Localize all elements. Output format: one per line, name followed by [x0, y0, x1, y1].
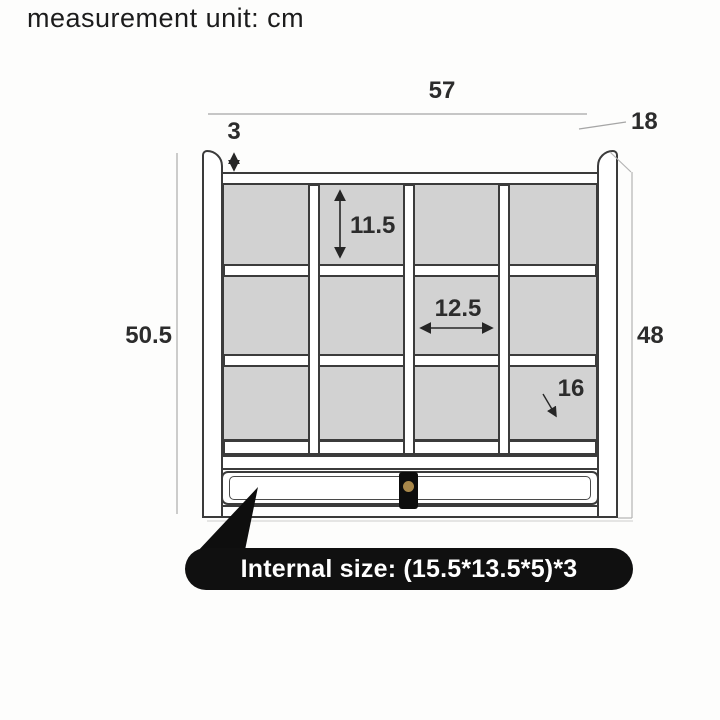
dim-top-rail-label: 3 [219, 120, 249, 144]
right-post [597, 150, 618, 518]
vertical-divider-3 [498, 184, 510, 455]
depth-18-leader [579, 122, 626, 129]
callout-pill: Internal size: (15.5*13.5*5)*3 [185, 548, 633, 590]
dim-overall-height-label: 50.5 [100, 324, 172, 348]
drawer-handle-knob [403, 481, 414, 492]
callout-text: Internal size: (15.5*13.5*5)*3 [241, 555, 578, 584]
dim-side-height-label: 48 [637, 324, 681, 348]
dim-cell-depth-label: 16 [551, 377, 591, 401]
bottom-board [221, 455, 599, 470]
dim-cell-height-label: 11.5 [350, 214, 406, 238]
vertical-divider-1 [308, 184, 320, 455]
dim-depth-label: 18 [631, 110, 675, 134]
unit-note: measurement unit: cm [27, 3, 304, 34]
dim-cell-width-label: 12.5 [428, 297, 488, 321]
left-post [202, 150, 223, 518]
dim-overall-width-label: 57 [415, 79, 469, 103]
